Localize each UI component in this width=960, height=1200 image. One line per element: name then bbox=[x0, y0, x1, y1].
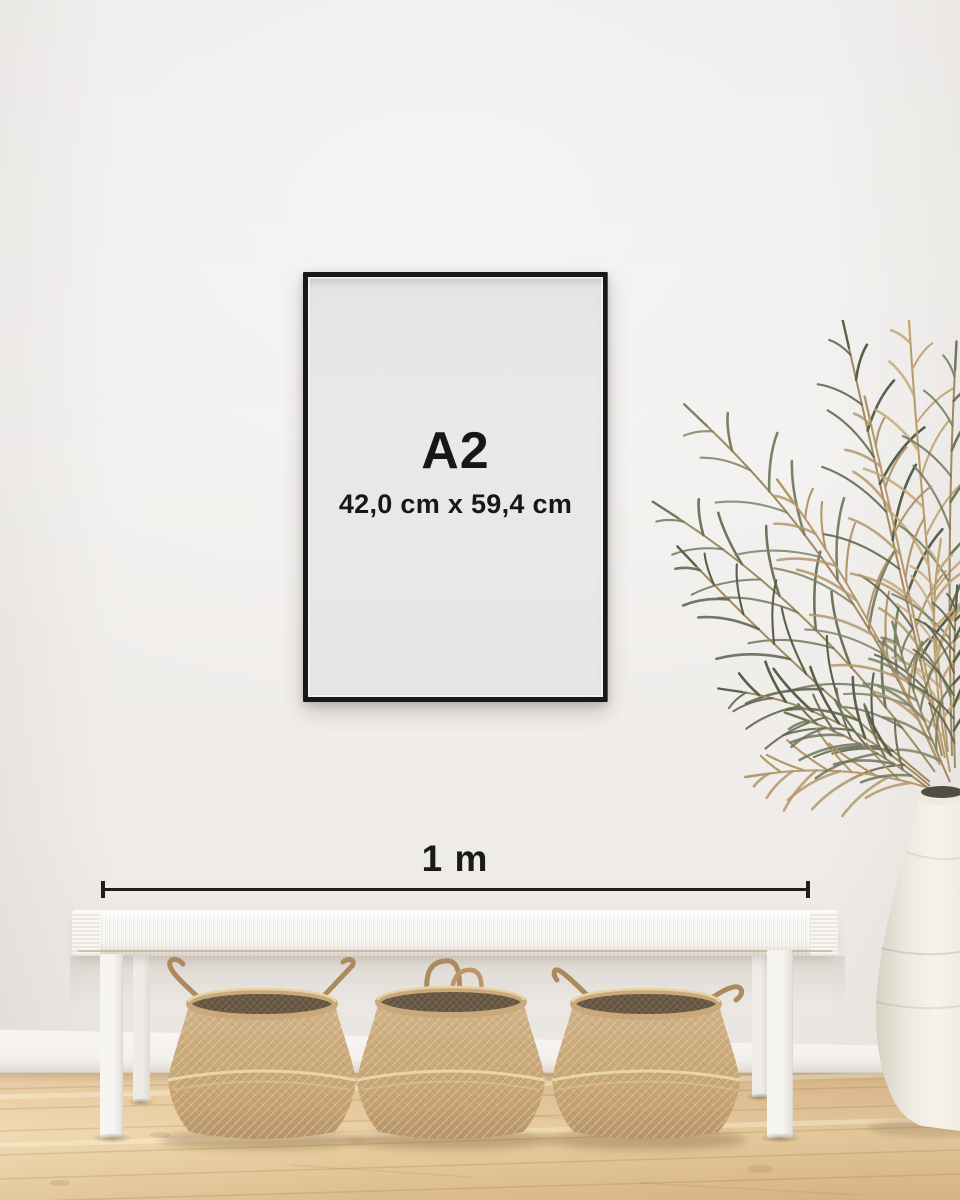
basket-left bbox=[168, 959, 356, 1139]
palm-fronds bbox=[653, 320, 960, 816]
basket-middle bbox=[357, 961, 545, 1139]
poster-frame: A2 42,0 cm x 59,4 cm bbox=[303, 272, 608, 702]
mockup-scene: A2 42,0 cm x 59,4 cm 1 m bbox=[0, 0, 960, 1200]
vase bbox=[876, 786, 960, 1131]
scale-cap-left bbox=[101, 881, 105, 898]
poster-dimensions-label: 42,0 cm x 59,4 cm bbox=[308, 490, 603, 520]
poster: A2 42,0 cm x 59,4 cm bbox=[308, 277, 603, 697]
poster-size-label: A2 bbox=[308, 425, 603, 477]
plant-and-vase bbox=[600, 320, 960, 1140]
scale-label: 1 m bbox=[355, 838, 555, 880]
poster-text-block: A2 42,0 cm x 59,4 cm bbox=[308, 425, 603, 520]
